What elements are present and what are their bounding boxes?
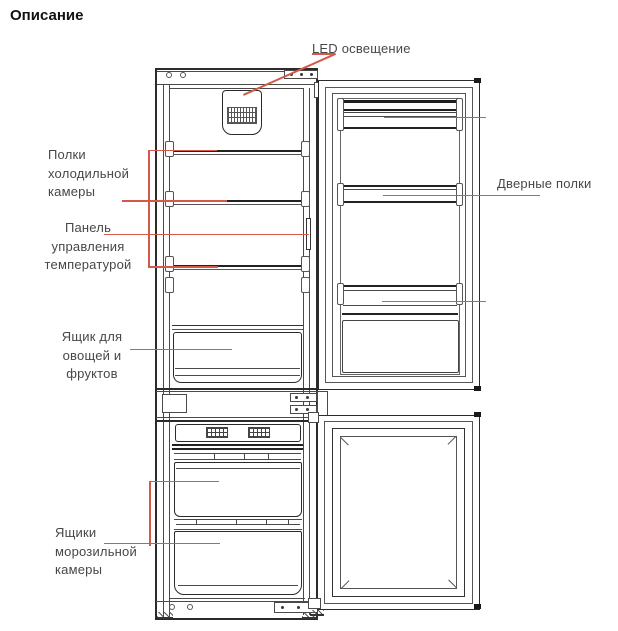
freezer-upper-shelf [174, 453, 301, 460]
middle-hinge-dot [295, 396, 298, 399]
freezer-door-hinge-tab [308, 598, 321, 609]
freezer-door-panel [340, 436, 457, 589]
door-shelf-1 [342, 112, 458, 129]
divider-line [156, 420, 317, 422]
base-screw [187, 604, 193, 610]
door-hinge-pin [474, 386, 481, 391]
door-bottom-panel [342, 320, 459, 373]
base-screw [169, 604, 175, 610]
callout-crisper: Ящик для овощей и фруктов [40, 328, 144, 384]
freezer-top-flap [175, 424, 301, 442]
divider-line [156, 391, 317, 392]
leader-line-door-shelf-3 [382, 301, 486, 303]
callout-fridge-shelves: Полки холодильной камеры [48, 146, 129, 202]
shelf-tick [268, 453, 269, 460]
freezer-vent-grille [206, 427, 228, 438]
page-title: Описание [10, 7, 83, 24]
freezer-drawer-lip [176, 468, 300, 469]
shelf-clip [301, 277, 310, 293]
shelf-clip [301, 141, 310, 157]
shelf-clip [165, 191, 174, 207]
callout-temp-control: Панель управления температурой [33, 219, 143, 275]
cabinet-left-wall [163, 85, 170, 618]
middle-hinge-dot [295, 408, 298, 411]
freezer-door-hinge-tab [308, 412, 319, 423]
cabinet-right-wall [303, 88, 310, 615]
freezer-vent-grille [248, 427, 270, 438]
door-shelf-end [337, 183, 344, 206]
shelf-clip [301, 191, 310, 207]
leader-line-shelf-1 [148, 150, 217, 152]
crisper-rail [172, 325, 303, 330]
freezer-mid-shelf-line [176, 524, 300, 525]
leader-line-freezer-drawer-1 [149, 481, 219, 483]
leader-line-shelf-3 [148, 266, 218, 268]
shelf-tick [196, 519, 197, 524]
cabinet-screw-left [166, 72, 172, 78]
freezer-floor-line [170, 598, 305, 599]
door-hinge-pin [474, 412, 481, 417]
left-foot [157, 612, 173, 619]
freezer-drawer-1 [174, 462, 302, 517]
manual-page: Описание [0, 0, 618, 631]
door-top-rail [342, 100, 458, 111]
cabinet-cap-line [157, 84, 316, 85]
callout-led-light: LED освещение [312, 40, 411, 59]
freezer-door-foot [310, 610, 324, 616]
shelf-clip [165, 277, 174, 293]
shelf-clip [165, 256, 174, 272]
crisper-front-line [175, 368, 300, 369]
divider-vent-box [162, 394, 187, 413]
shelf-tick [214, 453, 215, 460]
divider-line [156, 388, 317, 390]
freezer-rail [172, 444, 303, 450]
door-shelf-lip [343, 290, 457, 291]
middle-hinge-dot [306, 396, 309, 399]
door-shelf-lip [343, 305, 457, 306]
leader-line-door-shelf-1 [384, 117, 486, 119]
leader-bracket-fridge-shelves [148, 150, 150, 268]
fridge-ceiling-line [170, 88, 303, 89]
shelf-tick [266, 519, 267, 524]
door-shelf-end [337, 98, 344, 131]
freezer-drawer-line [178, 585, 298, 586]
leader-bracket-freezer-drawers [149, 481, 151, 546]
door-shelf-end [456, 98, 463, 131]
callout-door-shelves: Дверные полки [497, 175, 592, 194]
leader-line-crisper [130, 349, 232, 351]
door-shelf-lip [343, 189, 457, 190]
divider-line [156, 417, 317, 418]
cabinet-screw-right [180, 72, 186, 78]
door-hinge-pin [474, 78, 481, 83]
shelf-tick [288, 519, 289, 524]
door-hinge-pin [474, 604, 481, 609]
middle-hinge-dot [306, 408, 309, 411]
door-shelf-end [337, 283, 344, 305]
bottom-hinge-dot [297, 606, 300, 609]
callout-freezer-drawers: Ящики морозильной камеры [55, 524, 137, 580]
leader-line-door-shelf-2 [383, 195, 540, 197]
leader-line-shelf-2 [122, 200, 227, 202]
shelf-tick [236, 519, 237, 524]
crisper-front-line [175, 375, 300, 376]
bottom-hinge-dot [281, 606, 284, 609]
led-grille [227, 107, 257, 124]
top-hinge-dot [310, 73, 313, 76]
shelf-clip [301, 256, 310, 272]
top-hinge-dot [300, 73, 303, 76]
shelf-tick [244, 453, 245, 460]
